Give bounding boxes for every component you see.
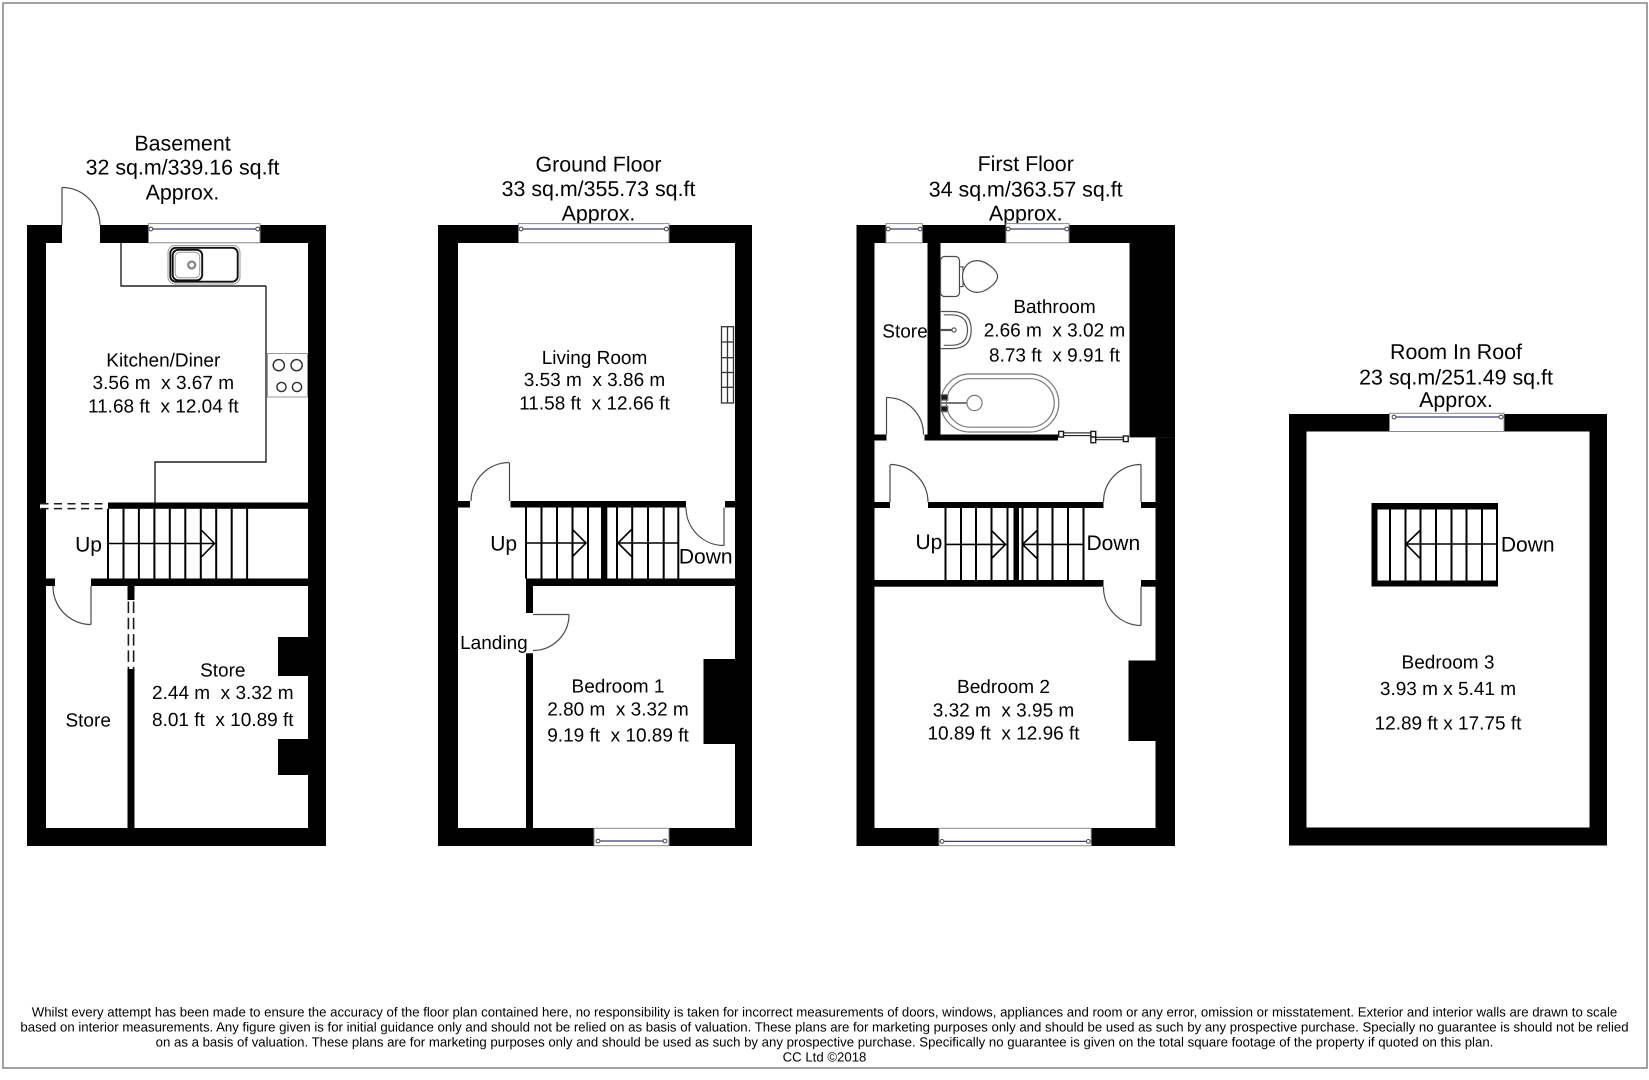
svg-text:Basement: Basement xyxy=(134,132,230,156)
svg-text:Bathroom: Bathroom xyxy=(1013,297,1095,318)
svg-text:Down: Down xyxy=(1086,532,1140,555)
svg-text:11.58 ft x 12.66 ft: 11.58 ft x 12.66 ft xyxy=(519,393,670,414)
svg-text:3.93 m x 5.41 m: 3.93 m x 5.41 m xyxy=(1380,679,1516,700)
svg-text:Approx.: Approx. xyxy=(562,202,636,226)
svg-text:23 sq.m/251.49 sq.ft: 23 sq.m/251.49 sq.ft xyxy=(1359,366,1553,390)
svg-text:9.19 ft x 10.89 ft: 9.19 ft x 10.89 ft xyxy=(547,725,689,746)
svg-text:12.89 ft x 17.75 ft: 12.89 ft x 17.75 ft xyxy=(1375,713,1523,734)
svg-text:Store: Store xyxy=(882,322,927,343)
svg-text:Bedroom 3: Bedroom 3 xyxy=(1402,653,1495,674)
svg-text:Down: Down xyxy=(1501,534,1555,557)
svg-text:11.68 ft x 12.04 ft: 11.68 ft x 12.04 ft xyxy=(88,397,239,418)
svg-text:Store: Store xyxy=(65,710,110,731)
svg-text:based on interior measurements: based on interior measurements. Any figu… xyxy=(20,1019,1628,1034)
svg-text:CC Ltd ©2018: CC Ltd ©2018 xyxy=(783,1049,867,1064)
svg-text:3.32 m x 3.95 m: 3.32 m x 3.95 m xyxy=(933,701,1075,722)
svg-text:2.44 m x 3.32 m: 2.44 m x 3.32 m xyxy=(152,683,294,704)
svg-text:Bedroom 1: Bedroom 1 xyxy=(572,676,665,697)
svg-text:Up: Up xyxy=(75,534,102,557)
svg-text:Bedroom 2: Bedroom 2 xyxy=(957,677,1050,698)
svg-text:3.56 m x 3.67 m: 3.56 m x 3.67 m xyxy=(93,373,235,394)
svg-text:34 sq.m/363.57 sq.ft: 34 sq.m/363.57 sq.ft xyxy=(929,178,1123,202)
svg-text:2.80 m x 3.32 m: 2.80 m x 3.32 m xyxy=(547,700,689,721)
svg-text:Down: Down xyxy=(679,546,733,569)
svg-text:Up: Up xyxy=(915,531,942,554)
svg-text:8.01 ft x 10.89 ft: 8.01 ft x 10.89 ft xyxy=(152,710,294,731)
svg-text:Store: Store xyxy=(200,661,245,682)
svg-text:Room In Roof: Room In Roof xyxy=(1390,340,1522,364)
svg-text:Living Room: Living Room xyxy=(542,348,648,369)
svg-text:33 sq.m/355.73 sq.ft: 33 sq.m/355.73 sq.ft xyxy=(502,177,696,201)
svg-text:Landing: Landing xyxy=(460,633,528,654)
svg-text:Kitchen/Diner: Kitchen/Diner xyxy=(106,350,221,371)
svg-text:Approx.: Approx. xyxy=(146,181,220,205)
svg-text:Whilst every attempt has been: Whilst every attempt has been made to en… xyxy=(32,1005,1617,1020)
svg-text:10.89 ft x 12.96 ft: 10.89 ft x 12.96 ft xyxy=(927,724,1080,745)
svg-text:Up: Up xyxy=(490,533,517,556)
svg-text:32 sq.m/339.16 sq.ft: 32 sq.m/339.16 sq.ft xyxy=(86,155,280,179)
svg-text:3.53 m x 3.86 m: 3.53 m x 3.86 m xyxy=(524,370,666,391)
svg-text:2.66 m x 3.02 m: 2.66 m x 3.02 m xyxy=(984,321,1126,342)
svg-text:8.73 ft x 9.91 ft: 8.73 ft x 9.91 ft xyxy=(989,345,1121,366)
svg-text:Approx.: Approx. xyxy=(989,202,1063,226)
svg-text:on as a basis of valuation. Th: on as a basis of valuation. These plans … xyxy=(156,1034,1494,1049)
svg-text:Approx.: Approx. xyxy=(1419,388,1493,412)
svg-text:Ground Floor: Ground Floor xyxy=(535,152,661,176)
svg-text:First Floor: First Floor xyxy=(978,152,1074,176)
